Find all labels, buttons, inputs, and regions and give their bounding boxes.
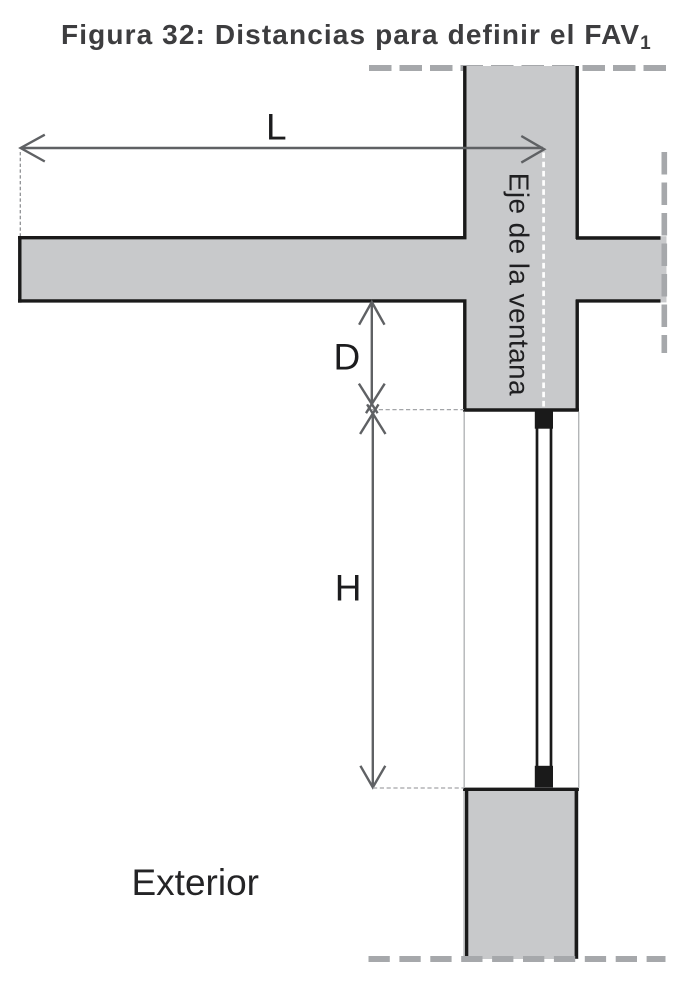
svg-text:Eje de la ventana: Eje de la ventana [503, 173, 534, 396]
svg-text:L: L [266, 106, 287, 147]
svg-text:Figura 32: Distancias para def: Figura 32: Distancias para definir el FA… [61, 19, 651, 54]
svg-text:D: D [334, 337, 361, 378]
svg-text:Exterior: Exterior [132, 862, 259, 903]
svg-text:H: H [335, 567, 362, 608]
